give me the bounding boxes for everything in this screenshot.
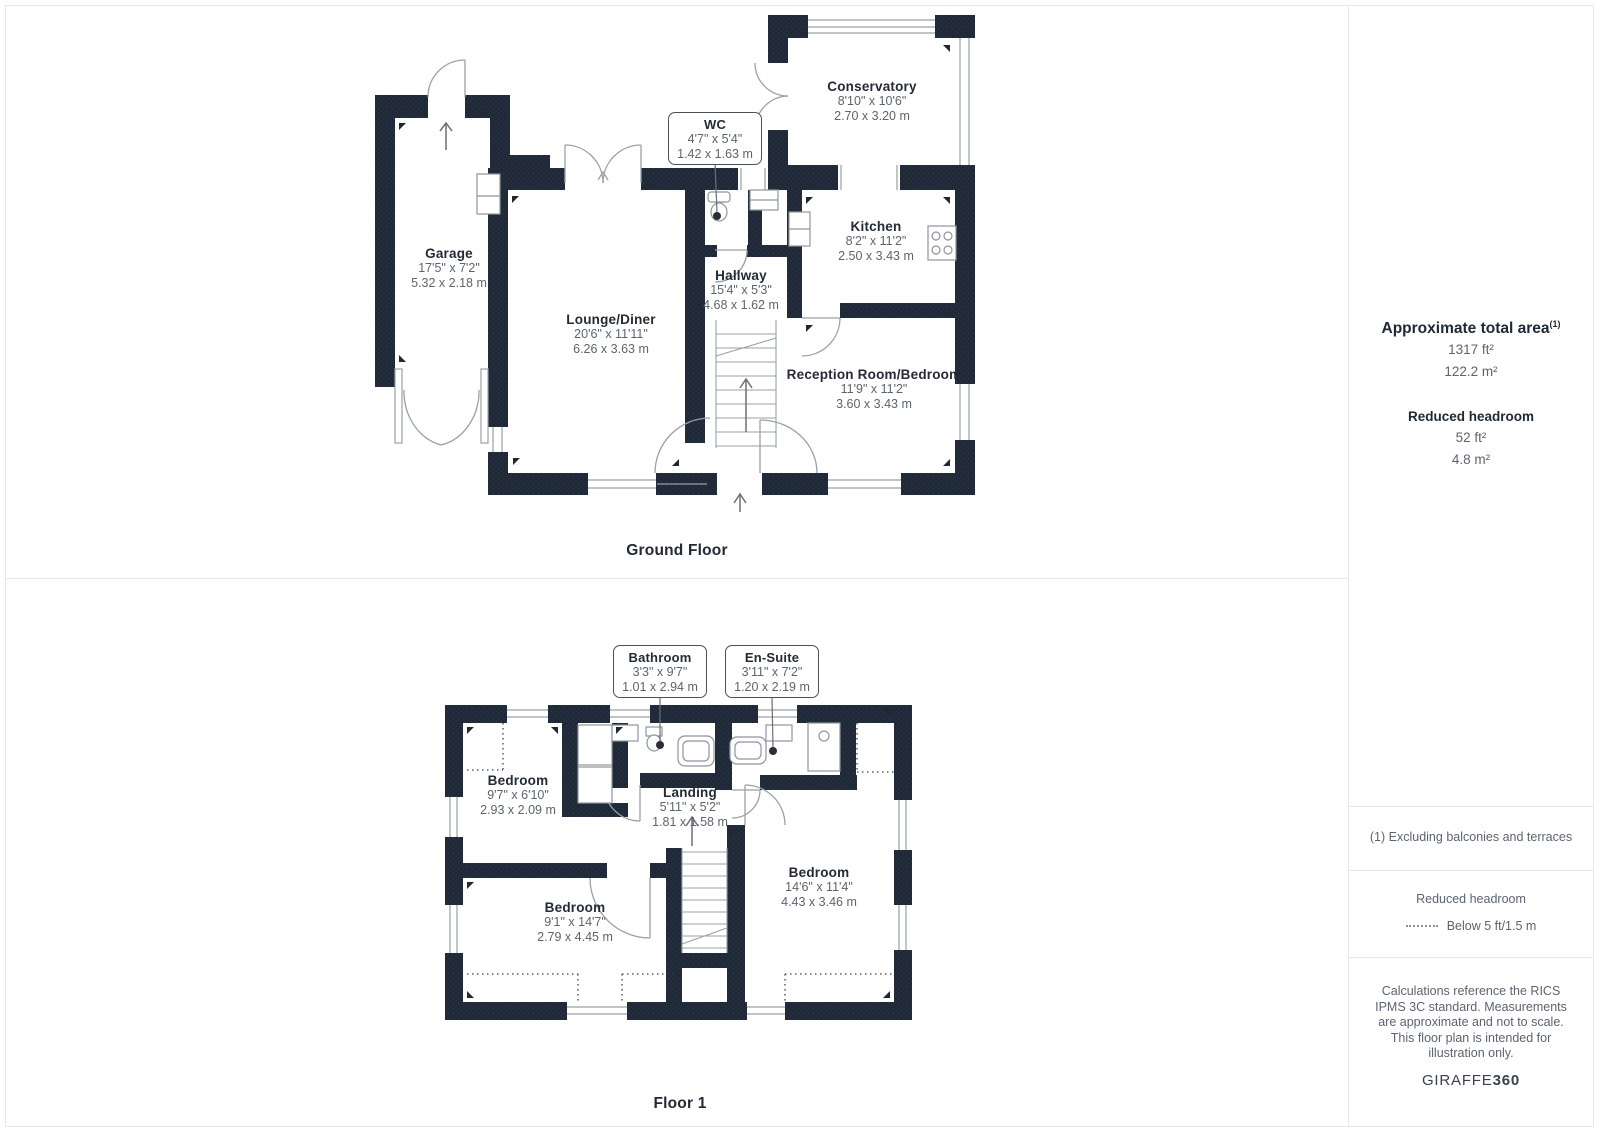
- room-dims-m: 1.42 x 1.63 m: [676, 147, 754, 162]
- room-dims-m: 4.68 x 1.62 m: [703, 298, 779, 313]
- room-dims-m: 1.20 x 2.19 m: [733, 680, 811, 695]
- total-area-m: 122.2 m²: [1349, 361, 1593, 383]
- total-area-ft: 1317 ft²: [1349, 339, 1593, 361]
- floor-caption-1: Floor 1: [653, 1095, 706, 1113]
- room-label-bedroom-1: Bedroom 9'7" x 6'10" 2.93 x 2.09 m: [480, 773, 556, 817]
- room-label-bedroom-2: Bedroom 14'6" x 11'4" 4.43 x 3.46 m: [781, 865, 857, 909]
- room-label-hallway: Hallway 15'4" x 5'3" 4.68 x 1.62 m: [703, 268, 779, 312]
- room-dims-m: 4.43 x 3.46 m: [781, 895, 857, 910]
- room-label-kitchen: Kitchen 8'2" x 11'2" 2.50 x 3.43 m: [838, 219, 914, 263]
- room-label-garage: Garage 17'5" x 7'2" 5.32 x 2.18 m: [411, 246, 487, 290]
- room-label-en-suite: En-Suite 3'11" x 7'2" 1.20 x 2.19 m: [725, 645, 819, 698]
- room-label-wc: WC 4'7" x 5'4" 1.42 x 1.63 m: [668, 112, 762, 165]
- room-dims-m: 3.60 x 3.43 m: [787, 397, 962, 412]
- total-area-footnote-marker: (1): [1549, 319, 1560, 329]
- room-name: Bathroom: [621, 650, 699, 665]
- floorplan-drawing: [0, 0, 1600, 1131]
- room-name: WC: [676, 117, 754, 132]
- room-dims-ft: 9'1" x 14'7": [537, 915, 613, 930]
- room-dims-m: 5.32 x 2.18 m: [411, 276, 487, 291]
- floor-caption-ground: Ground Floor: [626, 542, 727, 560]
- room-dims-ft: 5'11" x 5'2": [652, 800, 728, 815]
- room-label-reception: Reception Room/Bedroom 11'9" x 11'2" 3.6…: [787, 367, 962, 411]
- room-dims-ft: 15'4" x 5'3": [703, 283, 779, 298]
- reduced-headroom-title: Reduced headroom: [1349, 407, 1593, 427]
- room-dims-ft: 8'2" x 11'2": [838, 234, 914, 249]
- floor-1-plan: [445, 697, 912, 1020]
- room-dims-ft: 3'11" x 7'2": [733, 665, 811, 680]
- room-name: Lounge/Diner: [566, 312, 655, 327]
- room-label-conservatory: Conservatory 8'10" x 10'6" 2.70 x 3.20 m: [827, 79, 916, 123]
- sidebar-legend: Reduced headroom Below 5 ft/1.5 m: [1349, 891, 1593, 934]
- room-dims-m: 2.93 x 2.09 m: [480, 803, 556, 818]
- room-name: Conservatory: [827, 79, 916, 94]
- reduced-headroom-m: 4.8 m²: [1349, 449, 1593, 471]
- room-label-bathroom: Bathroom 3'3" x 9'7" 1.01 x 2.94 m: [613, 645, 707, 698]
- room-dims-m: 2.70 x 3.20 m: [827, 109, 916, 124]
- room-label-lounge-diner: Lounge/Diner 20'6" x 11'11" 6.26 x 3.63 …: [566, 312, 655, 356]
- sidebar-footnote: (1) Excluding balconies and terraces: [1349, 829, 1593, 845]
- room-name: Landing: [652, 785, 728, 800]
- room-dims-ft: 9'7" x 6'10": [480, 788, 556, 803]
- room-dims-m: 2.50 x 3.43 m: [838, 249, 914, 264]
- brand-suffix: 360: [1493, 1072, 1520, 1089]
- room-label-bedroom-3: Bedroom 9'1" x 14'7" 2.79 x 4.45 m: [537, 900, 613, 944]
- room-dims-m: 1.81 x 1.58 m: [652, 815, 728, 830]
- room-dims-m: 1.01 x 2.94 m: [621, 680, 699, 695]
- brand-name: GIRAFFE: [1422, 1072, 1493, 1089]
- room-dims-ft: 20'6" x 11'11": [566, 327, 655, 342]
- stairs-floor-1: [682, 848, 727, 953]
- reduced-headroom-ft: 52 ft²: [1349, 427, 1593, 449]
- room-dims-ft: 11'9" x 11'2": [787, 382, 962, 397]
- room-dims-ft: 8'10" x 10'6": [827, 94, 916, 109]
- room-name: Bedroom: [781, 865, 857, 880]
- room-dims-ft: 3'3" x 9'7": [621, 665, 699, 680]
- room-label-landing: Landing 5'11" x 5'2" 1.81 x 1.58 m: [652, 785, 728, 829]
- room-name: Bedroom: [480, 773, 556, 788]
- dotted-line-icon: [1406, 925, 1438, 927]
- legend-title: Reduced headroom: [1349, 891, 1593, 907]
- room-name: Reception Room/Bedroom: [787, 367, 962, 382]
- legend-row: Below 5 ft/1.5 m: [1349, 918, 1593, 934]
- room-dims-m: 2.79 x 4.45 m: [537, 930, 613, 945]
- brand-logo: GIRAFFE360: [1349, 1072, 1593, 1089]
- legend-label: Below 5 ft/1.5 m: [1447, 918, 1537, 934]
- room-dims-ft: 14'6" x 11'4": [781, 880, 857, 895]
- sidebar-disclaimer: Calculations reference the RICS IPMS 3C …: [1366, 984, 1576, 1062]
- total-area-title: Approximate total area(1): [1349, 314, 1593, 339]
- room-name: Hallway: [703, 268, 779, 283]
- room-dims-ft: 17'5" x 7'2": [411, 261, 487, 276]
- room-name: Garage: [411, 246, 487, 261]
- floorplan-page: Garage 17'5" x 7'2" 5.32 x 2.18 m Lounge…: [0, 0, 1600, 1131]
- room-dims-ft: 4'7" x 5'4": [676, 132, 754, 147]
- room-name: En-Suite: [733, 650, 811, 665]
- room-name: Bedroom: [537, 900, 613, 915]
- sidebar-total-area: Approximate total area(1) 1317 ft² 122.2…: [1349, 314, 1593, 471]
- room-dims-m: 6.26 x 3.63 m: [566, 342, 655, 357]
- total-area-title-text: Approximate total area: [1382, 320, 1550, 337]
- room-name: Kitchen: [838, 219, 914, 234]
